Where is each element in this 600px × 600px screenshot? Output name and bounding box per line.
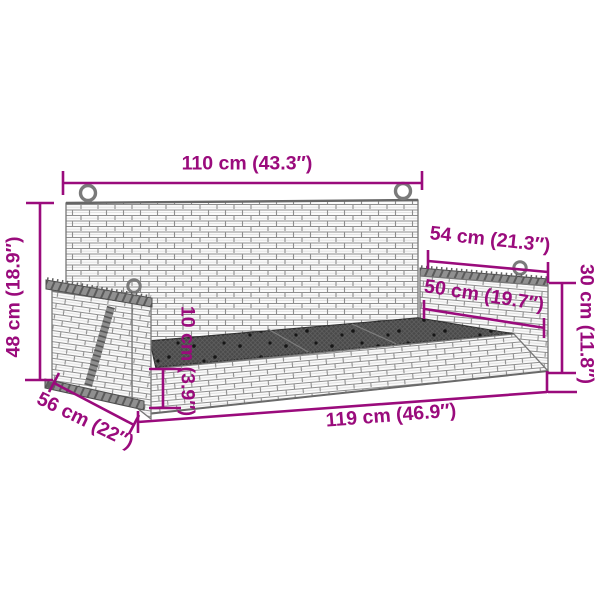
swing-bench-dimension-diagram: 110 cm (43.3″) 48 cm (18.9″) 54 cm (21.3… xyxy=(0,0,600,600)
dimension-line-back-height xyxy=(25,203,54,380)
dim-label-seat-thickness: 10 cm (3.9″) xyxy=(176,306,199,416)
hanging-ring-back-right xyxy=(396,184,411,199)
hanging-ring-back-left xyxy=(81,186,96,201)
dim-label-back-width: 110 cm (43.3″) xyxy=(182,153,313,176)
dim-label-side-height: 30 cm (11.8″) xyxy=(575,264,598,384)
dim-label-back-height: 48 cm (18.9″) xyxy=(3,237,26,358)
dimension-line-side-height xyxy=(548,283,576,373)
